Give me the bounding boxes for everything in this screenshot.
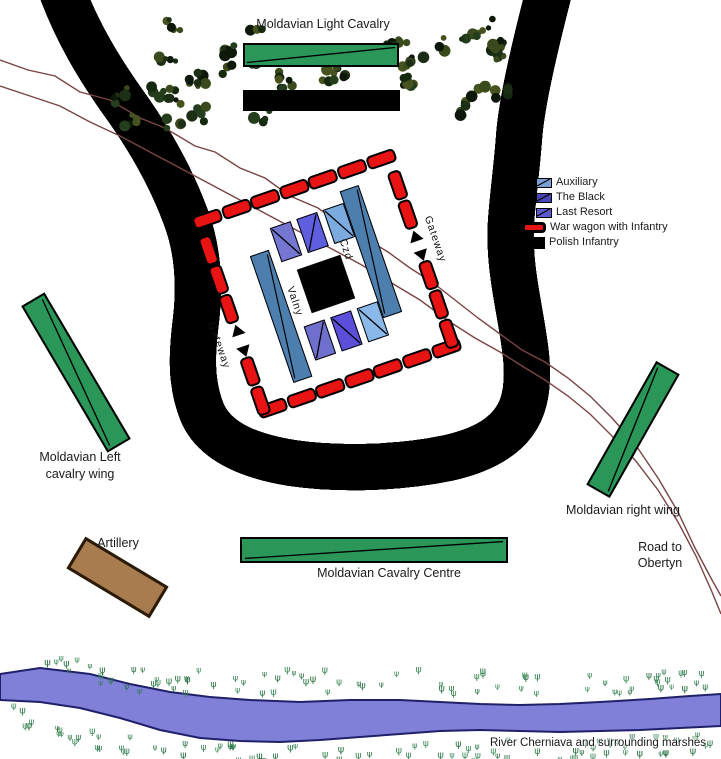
svg-text:ψ: ψ: [336, 678, 342, 688]
svg-text:ψ: ψ: [161, 745, 167, 755]
legend-label: The Black: [556, 190, 605, 205]
svg-text:ψ: ψ: [480, 668, 486, 679]
battle-map: ψψψψψψψψψψψψψψψψψψψψψψψψψψψψψψψψψψψψψψψψ…: [0, 0, 721, 759]
svg-text:ψ: ψ: [98, 678, 103, 687]
svg-text:ψ: ψ: [534, 672, 540, 683]
svg-text:ψ: ψ: [183, 688, 189, 698]
svg-text:ψ: ψ: [603, 678, 608, 687]
svg-text:ψ: ψ: [579, 748, 584, 757]
svg-text:ψ: ψ: [293, 741, 298, 750]
svg-text:ψ: ψ: [449, 750, 454, 759]
svg-text:ψ: ψ: [396, 746, 402, 757]
svg-text:ψ: ψ: [11, 702, 17, 712]
svg-text:ψ: ψ: [259, 755, 265, 759]
svg-text:ψ: ψ: [475, 742, 480, 751]
svg-text:ψ: ψ: [180, 750, 186, 759]
legend-item-war-wagon-with-infantry: War wagon with Infantry: [522, 220, 668, 235]
left-wing-label-line2: cavalry wing: [20, 467, 140, 481]
legend: AuxiliaryThe BlackLast ResortWar wagon w…: [522, 175, 668, 250]
svg-text:ψ: ψ: [196, 665, 201, 674]
legend-label: War wagon with Infantry: [550, 220, 668, 235]
svg-text:ψ: ψ: [522, 671, 528, 681]
river-label: River Cherniava and surrounding marshes: [490, 737, 706, 749]
polish-infantry-bar: [243, 90, 400, 111]
svg-text:ψ: ψ: [379, 679, 384, 688]
svg-text:ψ: ψ: [663, 748, 669, 758]
legend-item-last-resort: Last Resort: [522, 205, 668, 220]
cavalry-unit-1: [270, 221, 303, 262]
svg-text:ψ: ψ: [124, 682, 129, 691]
svg-text:ψ: ψ: [702, 683, 708, 693]
svg-text:ψ: ψ: [55, 724, 60, 732]
cavalry-centre-label: Moldavian Cavalry Centre: [254, 566, 524, 580]
right-wing-label: Moldavian right wing: [553, 503, 693, 517]
legend-item-the-black: The Black: [522, 190, 668, 205]
legend-swatch-unit: [536, 193, 552, 203]
svg-text:ψ: ψ: [262, 669, 267, 678]
svg-text:ψ: ψ: [570, 753, 576, 759]
cavalry-unit-2: [296, 212, 329, 253]
svg-text:ψ: ψ: [678, 669, 684, 679]
svg-text:ψ: ψ: [303, 676, 310, 687]
svg-text:ψ: ψ: [89, 726, 95, 737]
svg-text:ψ: ψ: [322, 750, 328, 759]
svg-text:ψ: ψ: [140, 665, 145, 674]
svg-text:ψ: ψ: [171, 684, 176, 693]
svg-text:ψ: ψ: [292, 669, 297, 677]
svg-text:ψ: ψ: [558, 754, 563, 759]
svg-text:ψ: ψ: [227, 741, 232, 751]
tree-clusters: [111, 16, 513, 132]
svg-text:ψ: ψ: [412, 740, 417, 750]
svg-text:ψ: ψ: [367, 749, 372, 759]
svg-text:ψ: ψ: [275, 674, 281, 684]
legend-label: Auxiliary: [556, 175, 598, 190]
legend-swatch-wagon: [522, 222, 546, 233]
svg-text:ψ: ψ: [437, 750, 443, 759]
svg-text:ψ: ψ: [88, 661, 93, 670]
svg-text:ψ: ψ: [455, 739, 461, 750]
svg-text:ψ: ψ: [449, 684, 455, 694]
svg-text:ψ: ψ: [699, 669, 705, 679]
svg-text:ψ: ψ: [236, 756, 242, 759]
svg-text:ψ: ψ: [108, 675, 114, 686]
svg-text:ψ: ψ: [287, 743, 294, 754]
svg-text:ψ: ψ: [119, 742, 124, 752]
svg-text:ψ: ψ: [270, 687, 276, 698]
svg-text:ψ: ψ: [127, 731, 132, 741]
svg-text:ψ: ψ: [137, 685, 142, 695]
polish-infantry-square: [297, 255, 355, 313]
svg-text:ψ: ψ: [44, 657, 51, 668]
svg-text:ψ: ψ: [151, 679, 157, 690]
svg-text:ψ: ψ: [322, 665, 328, 676]
svg-text:ψ: ψ: [406, 751, 412, 759]
svg-text:ψ: ψ: [310, 674, 317, 685]
svg-text:ψ: ψ: [653, 674, 659, 684]
svg-text:ψ: ψ: [504, 753, 510, 759]
svg-text:ψ: ψ: [495, 751, 500, 759]
light-cavalry-label: Moldavian Light Cavalry: [238, 17, 408, 31]
svg-text:ψ: ψ: [153, 742, 158, 751]
svg-text:ψ: ψ: [74, 654, 79, 664]
svg-text:ψ: ψ: [233, 672, 238, 682]
svg-text:ψ: ψ: [646, 671, 652, 681]
svg-text:ψ: ψ: [585, 684, 590, 693]
legend-label: Last Resort: [556, 205, 612, 220]
road-label-line1: Road to: [610, 540, 710, 554]
svg-text:ψ: ψ: [658, 749, 663, 758]
svg-text:ψ: ψ: [423, 739, 429, 749]
svg-text:ψ: ψ: [394, 669, 399, 678]
svg-text:ψ: ψ: [617, 688, 622, 697]
svg-text:ψ: ψ: [623, 674, 629, 685]
svg-text:ψ: ψ: [587, 671, 592, 680]
legend-swatch-unit: [536, 208, 552, 218]
svg-text:ψ: ψ: [273, 751, 279, 759]
cavalry-unit-5: [330, 310, 363, 351]
svg-text:ψ: ψ: [96, 732, 101, 741]
svg-text:ψ: ψ: [669, 682, 674, 691]
gateway-left-arrow-up: [229, 322, 246, 337]
svg-text:ψ: ψ: [355, 751, 361, 759]
legend-swatch-infantry: [522, 237, 545, 249]
svg-text:ψ: ψ: [628, 687, 633, 696]
svg-text:ψ: ψ: [590, 751, 596, 759]
svg-text:ψ: ψ: [475, 686, 480, 695]
svg-text:ψ: ψ: [534, 689, 539, 698]
svg-text:ψ: ψ: [694, 678, 699, 687]
road-label-line2: Obertyn: [610, 556, 710, 570]
svg-text:ψ: ψ: [22, 721, 28, 731]
svg-text:ψ: ψ: [249, 753, 255, 759]
svg-text:ψ: ψ: [99, 665, 105, 676]
svg-text:ψ: ψ: [519, 683, 524, 692]
svg-text:ψ: ψ: [336, 754, 342, 759]
svg-text:ψ: ψ: [325, 686, 330, 696]
svg-text:ψ: ψ: [475, 751, 481, 759]
legend-item-auxiliary: Auxiliary: [522, 175, 668, 190]
svg-text:ψ: ψ: [241, 678, 246, 687]
gateway-right-arrow-up: [407, 228, 424, 243]
svg-text:ψ: ψ: [218, 740, 223, 750]
svg-text:ψ: ψ: [259, 689, 265, 699]
svg-text:ψ: ψ: [97, 743, 102, 753]
legend-label: Polish Infantry: [549, 235, 619, 250]
svg-text:ψ: ψ: [359, 681, 365, 692]
svg-text:ψ: ψ: [495, 682, 500, 691]
moldavian-cavalry-centre-bar: [240, 537, 508, 563]
svg-text:ψ: ψ: [67, 666, 72, 675]
svg-text:ψ: ψ: [416, 665, 422, 676]
cavalry-unit-4: [304, 319, 337, 360]
svg-text:ψ: ψ: [235, 685, 240, 694]
svg-text:ψ: ψ: [124, 746, 130, 757]
svg-text:ψ: ψ: [637, 749, 644, 759]
legend-item-polish-infantry: Polish Infantry: [522, 235, 668, 250]
svg-text:ψ: ψ: [603, 748, 609, 759]
svg-text:ψ: ψ: [131, 665, 137, 675]
svg-text:ψ: ψ: [201, 742, 207, 752]
svg-text:ψ: ψ: [58, 652, 63, 662]
svg-text:ψ: ψ: [184, 673, 189, 682]
svg-text:ψ: ψ: [182, 739, 188, 749]
left-wing-label-line1: Moldavian Left: [20, 450, 140, 464]
svg-text:ψ: ψ: [19, 706, 26, 717]
svg-text:ψ: ψ: [75, 733, 81, 743]
svg-text:ψ: ψ: [175, 674, 181, 685]
artillery-label: Artillery: [68, 536, 168, 550]
svg-text:ψ: ψ: [682, 684, 688, 695]
svg-text:ψ: ψ: [284, 665, 290, 676]
svg-text:ψ: ψ: [211, 680, 217, 690]
legend-swatch-unit: [536, 178, 552, 188]
moldavian-light-cavalry-bar: [243, 43, 399, 67]
svg-text:ψ: ψ: [462, 750, 468, 759]
svg-text:ψ: ψ: [439, 679, 444, 688]
